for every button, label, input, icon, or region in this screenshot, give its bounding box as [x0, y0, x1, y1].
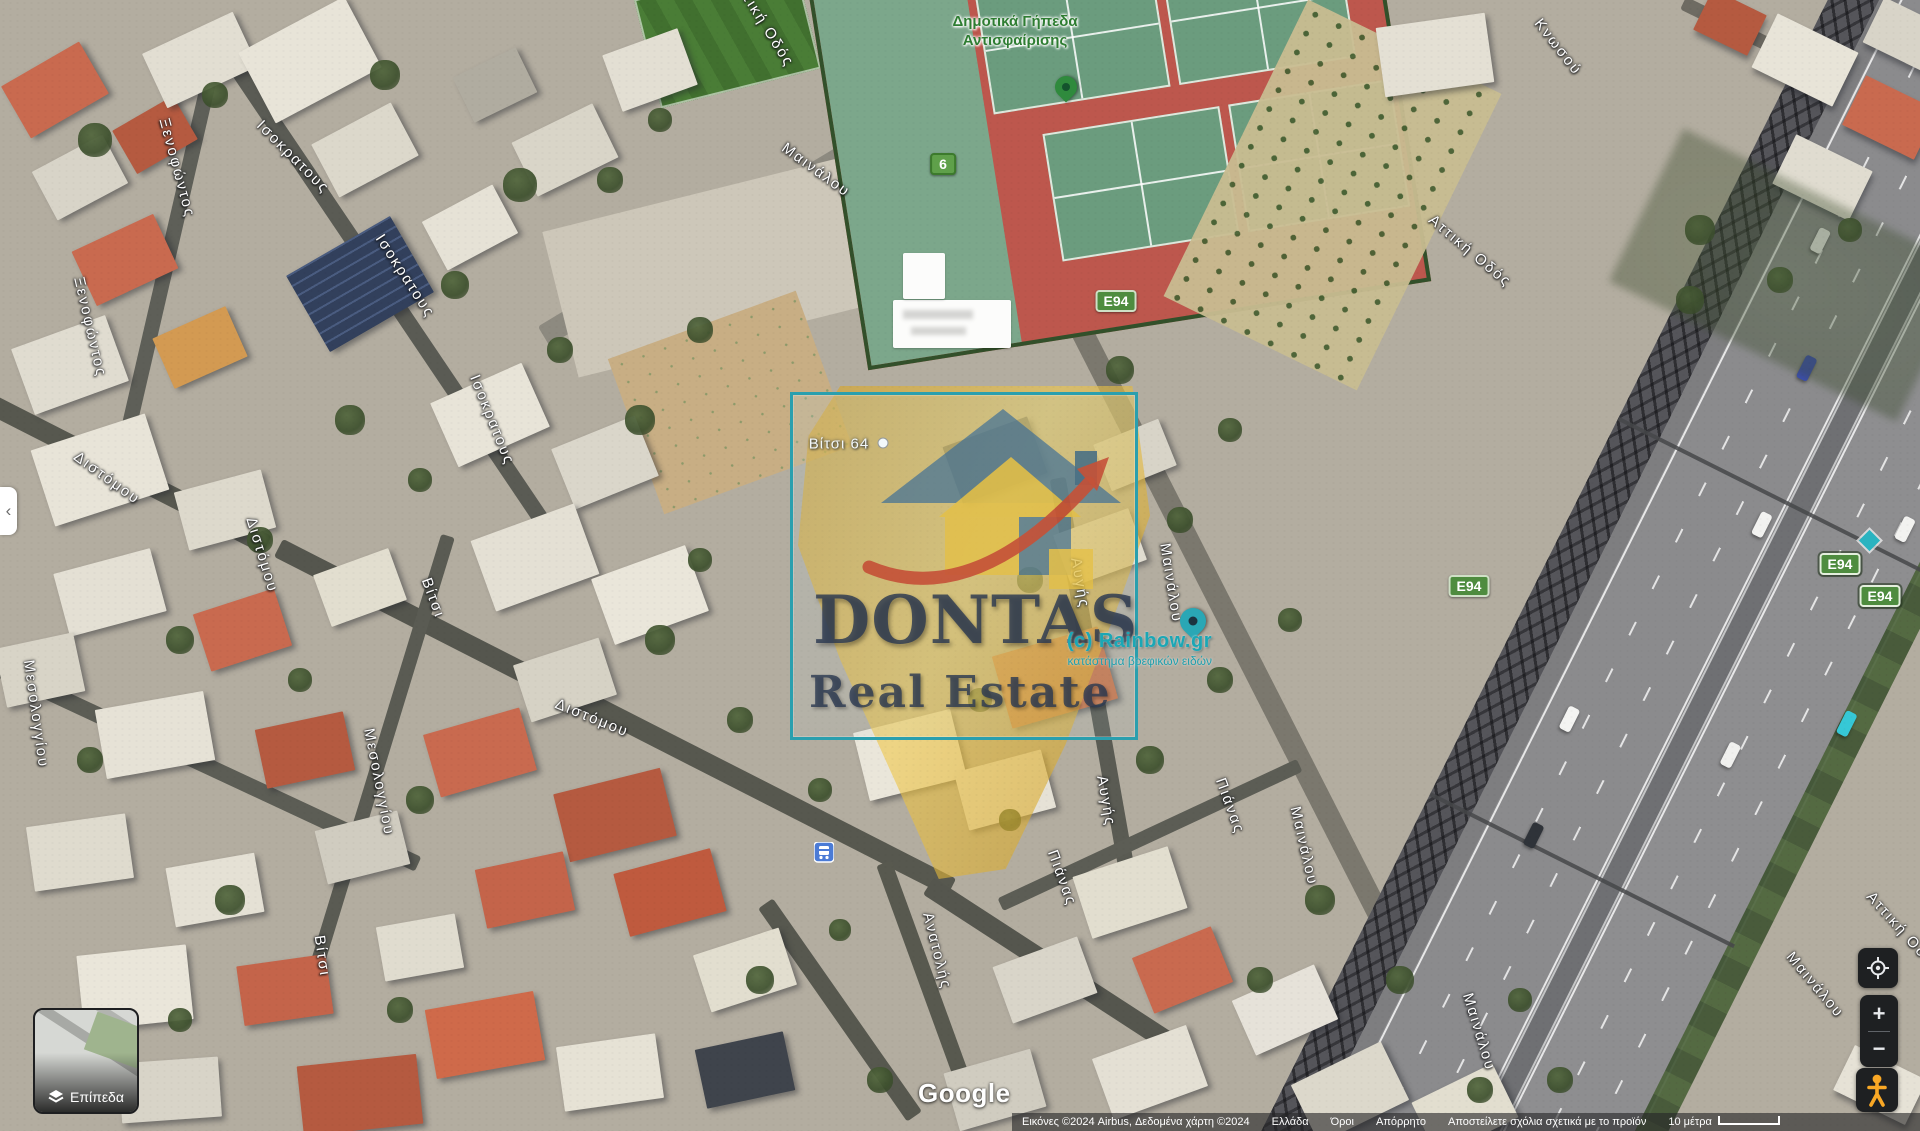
- dontas-logo: [853, 399, 1131, 597]
- building: [475, 851, 576, 928]
- building: [11, 315, 129, 415]
- bus-stop-icon[interactable]: [814, 842, 834, 869]
- tree: [1167, 507, 1193, 533]
- building: [470, 503, 599, 611]
- tree: [829, 919, 851, 941]
- tree: [1305, 885, 1335, 915]
- building: [425, 991, 545, 1079]
- building: [255, 711, 356, 788]
- street-label: Μαινάλου: [1156, 542, 1185, 624]
- poi-label-tennis: Δημοτικά Γήπεδα Αντισφαίρισης: [885, 12, 1145, 50]
- tree: [727, 707, 753, 733]
- layers-label: Επίπεδα: [70, 1089, 124, 1105]
- pegman-button[interactable]: [1856, 1068, 1898, 1112]
- terms-link[interactable]: Όροι: [1331, 1116, 1354, 1131]
- tree: [597, 167, 623, 193]
- street-label: Αττική Οδός: [1425, 211, 1515, 290]
- attribution-bar: Εικόνες ©2024 Airbus, Δεδομένα χάρτη ©20…: [1012, 1113, 1920, 1131]
- tree: [648, 108, 672, 132]
- tree: [1106, 356, 1134, 384]
- tree: [625, 405, 655, 435]
- zoom-out-button[interactable]: −: [1860, 1032, 1898, 1065]
- building: [422, 184, 518, 270]
- feedback-link[interactable]: Αποστείλετε σχόλια σχετικά με το προϊόν: [1448, 1116, 1646, 1131]
- building: [152, 306, 247, 389]
- tree: [1218, 418, 1242, 442]
- route-badge: E94: [1449, 575, 1490, 597]
- tree: [166, 626, 194, 654]
- building: [556, 1033, 664, 1111]
- building: [695, 1031, 796, 1108]
- building: [376, 913, 464, 981]
- imagery-credit: Εικόνες ©2024 Airbus, Δεδομένα χάρτη ©20…: [1022, 1116, 1250, 1131]
- tree: [335, 405, 365, 435]
- route-badge: 6: [930, 153, 956, 175]
- blurred-sign: [893, 300, 1011, 348]
- tree: [1467, 1077, 1493, 1103]
- building: [26, 813, 134, 891]
- tree: [215, 885, 245, 915]
- zoom-control[interactable]: + −: [1860, 995, 1898, 1067]
- layers-button[interactable]: Επίπεδα: [33, 1008, 139, 1114]
- building: [165, 853, 264, 928]
- building: [613, 848, 726, 937]
- tree: [1247, 967, 1273, 993]
- tree: [688, 548, 712, 572]
- building: [453, 47, 538, 123]
- side-panel-collapse-button[interactable]: ‹: [0, 487, 17, 535]
- watermark-box: DONTAS Real Estate: [790, 392, 1138, 740]
- building: [53, 548, 166, 637]
- tree: [1136, 746, 1164, 774]
- layers-icon: [48, 1089, 64, 1105]
- google-logo[interactable]: Google: [918, 1078, 1011, 1109]
- tree: [408, 468, 432, 492]
- building: [423, 707, 537, 797]
- region-label: Ελλάδα: [1272, 1116, 1309, 1131]
- tree: [1278, 608, 1302, 632]
- building: [1693, 0, 1767, 56]
- tree: [406, 786, 434, 814]
- tree: [808, 778, 832, 802]
- tree: [547, 337, 573, 363]
- tree: [78, 123, 112, 157]
- route-badge: E94: [1860, 585, 1901, 607]
- tree: [168, 1008, 192, 1032]
- street-label: Κνωσού: [1531, 15, 1586, 78]
- chevron-left-icon: ‹: [6, 501, 12, 521]
- building: [193, 588, 292, 671]
- tree: [1547, 1067, 1573, 1093]
- my-location-button[interactable]: [1858, 948, 1898, 988]
- privacy-link[interactable]: Απόρρητο: [1376, 1116, 1426, 1131]
- compass-icon: [1866, 956, 1890, 980]
- tree: [687, 317, 713, 343]
- watermark-tagline: Real Estate: [809, 667, 1125, 718]
- building: [1132, 926, 1233, 1013]
- tree: [645, 625, 675, 655]
- tree: [387, 997, 413, 1023]
- tree: [867, 1067, 893, 1093]
- tree: [1386, 966, 1414, 994]
- building: [297, 1054, 424, 1131]
- street-label: Μαινάλου: [1783, 949, 1848, 1022]
- zoom-in-button[interactable]: +: [1860, 997, 1898, 1030]
- route-badge: E94: [1820, 553, 1861, 575]
- route-badge: E94: [1096, 290, 1137, 312]
- tree: [1508, 988, 1532, 1012]
- tree: [503, 168, 537, 202]
- map-scale: 10 μέτρα: [1668, 1116, 1780, 1131]
- tree: [441, 271, 469, 299]
- tree: [288, 668, 312, 692]
- building: [693, 928, 797, 1013]
- tree: [746, 966, 774, 994]
- map-viewport[interactable]: Αττική ΟδόςΜαινάλουΚνωσούΑττική ΟδόςΞενο…: [0, 0, 1920, 1131]
- tree: [370, 60, 400, 90]
- tree: [202, 82, 228, 108]
- blurred-sign: [903, 253, 945, 299]
- store-poi-label: (c) Rainbow.gr κατάστημα βρεφικών ειδών: [1018, 630, 1212, 668]
- building: [553, 768, 677, 863]
- tree: [1207, 667, 1233, 693]
- scale-bar: [1718, 1116, 1780, 1125]
- pegman-icon: [1864, 1073, 1890, 1107]
- tree: [77, 747, 103, 773]
- building: [1092, 1025, 1208, 1120]
